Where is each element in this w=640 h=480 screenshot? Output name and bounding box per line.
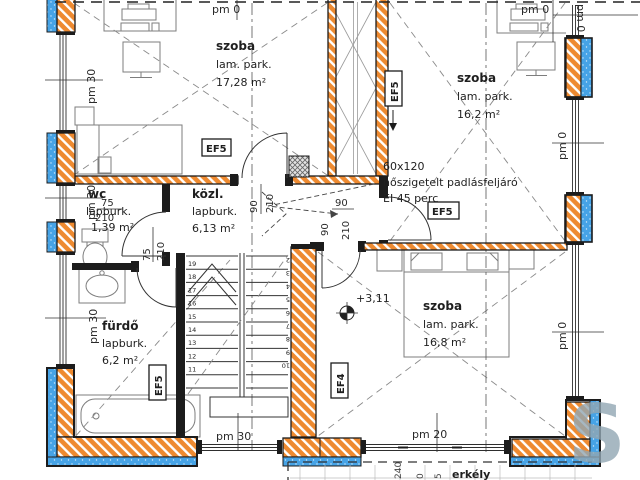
partition-wall: [364, 243, 567, 250]
room-name: szoba: [423, 299, 462, 313]
insulation-strip: [47, 222, 57, 252]
masonry-pier: [57, 368, 74, 437]
balcony-dim: 0: [416, 473, 426, 479]
masonry-pier: [57, 222, 75, 252]
pillow: [411, 253, 442, 270]
stair-step-number: 9: [286, 348, 290, 356]
door-width: 90: [320, 223, 331, 236]
nightstand: [377, 250, 402, 271]
monitor: [517, 42, 555, 70]
partition-wall: [72, 176, 238, 184]
stair-step-number: 6: [286, 309, 290, 317]
ef5-tag: EF5: [154, 375, 165, 396]
room-floor: lam. park.: [423, 318, 479, 331]
watermark: S: [568, 388, 626, 480]
ef4-tag: EF4: [336, 373, 347, 394]
room-floor: lapburk.: [102, 337, 147, 350]
shaft-wall-left: [328, 0, 336, 176]
attic-fire-rating: EI 45 perc: [383, 192, 438, 205]
floor-plan-drawing: 19 18 17 16 15 14 13 12 11 2 3 4 5 6 7 8…: [0, 0, 640, 480]
window-cap: [361, 440, 366, 454]
insulation-strip: [581, 38, 592, 97]
door-width: 75: [101, 198, 114, 209]
masonry-pier: [283, 438, 361, 457]
stair-step-number: 11: [188, 366, 196, 374]
room-floor: lam. park.: [457, 90, 513, 103]
ef5-tag: EF5: [390, 81, 401, 102]
room-area: 6,2 m²: [102, 354, 138, 367]
room-name: szoba: [457, 71, 496, 85]
door-jamb: [131, 261, 139, 272]
insulation-strip: [47, 457, 197, 466]
keyboard: [121, 23, 149, 31]
window-cap: [504, 440, 509, 454]
room-name: szoba: [216, 39, 255, 53]
balcony-dim: 5: [434, 473, 444, 479]
room-area: 16,8 m²: [423, 336, 466, 349]
ef5-tag: EF5: [432, 207, 453, 218]
printer: [122, 9, 156, 20]
chimney: [289, 156, 309, 177]
masonry-pier: [57, 0, 75, 32]
door-width: 90: [249, 200, 260, 213]
dimension-label: pm 30: [85, 69, 98, 104]
room-area: 16,2 m²: [457, 108, 500, 121]
door-height: 210: [156, 242, 167, 261]
insulation-strip: [47, 368, 57, 457]
door-width: 90: [335, 198, 348, 209]
door-height: 210: [341, 221, 352, 240]
room-floor: lapburk.: [192, 205, 237, 218]
dimension-label: pm 0: [556, 322, 569, 350]
stair-step-number: 3: [286, 269, 290, 277]
balcony-name: erkély: [452, 468, 490, 480]
stair-step-number: 4: [286, 282, 290, 290]
stair-step-number: 18: [188, 273, 196, 281]
dimension-label: pm 20: [412, 428, 447, 441]
masonry-pier: [566, 38, 581, 97]
attic-note: hőszigetelt padlásfeljáró: [383, 176, 518, 189]
balcony-dim: 240: [394, 462, 404, 479]
dimension-label: pm 30: [87, 309, 100, 344]
stair-step-number: 16: [188, 300, 196, 308]
stair-step-number: 17: [188, 286, 196, 294]
attic-size: 60x120: [383, 160, 425, 173]
ef5-tag: EF5: [206, 144, 227, 155]
window-cap: [197, 440, 202, 454]
wall-cap: [291, 244, 316, 249]
dimension-label: pm 0: [556, 132, 569, 160]
bed-single: [77, 125, 182, 174]
wc-bath-wall: [72, 263, 133, 270]
door-height: 210: [265, 194, 276, 213]
window-cap: [277, 440, 282, 454]
stair-step-number: 12: [188, 352, 196, 360]
nightstand: [509, 250, 534, 269]
stair-step-number: 8: [286, 335, 290, 343]
dimension-label: pm 0: [212, 3, 240, 16]
wc-wall: [162, 184, 170, 212]
stair-wall-right: [291, 247, 316, 437]
masonry-pier: [566, 195, 581, 242]
stair-step-number: 14: [188, 326, 196, 334]
stair-step-number: 5: [286, 296, 290, 304]
room-name: fürdő: [102, 319, 139, 333]
monitor: [123, 42, 160, 72]
masonry-band: [57, 437, 197, 457]
stair-step-number: 2: [286, 256, 290, 264]
dimension-label: pm 30: [216, 430, 251, 443]
stair-step-number: 7: [286, 322, 290, 330]
masonry-pier: [57, 133, 75, 183]
mouse: [152, 23, 159, 31]
room-area: 17,28 m²: [216, 76, 266, 89]
printer: [128, 4, 149, 9]
keyboard: [510, 23, 538, 31]
level-value: +3,11: [356, 292, 390, 305]
pillow: [75, 107, 94, 125]
insulation-strip: [581, 195, 592, 242]
floor-plan-page: 19 18 17 16 15 14 13 12 11 2 3 4 5 6 7 8…: [0, 0, 640, 480]
dimension-label: pm 0: [574, 4, 587, 32]
pillow: [467, 253, 498, 270]
stair-step-number: 10: [282, 362, 290, 370]
dimension-label: pm 0: [521, 3, 549, 16]
door-jamb: [230, 174, 238, 186]
room-area: 6,13 m²: [192, 222, 235, 235]
insulation-strip: [47, 133, 57, 183]
door-height: 210: [95, 213, 114, 224]
stair-step-number: 13: [188, 339, 196, 347]
stair-step-number: 15: [188, 313, 196, 321]
room-floor: lam. park.: [216, 58, 272, 71]
stair-wall-left: [176, 253, 185, 437]
insulation-strip: [47, 0, 57, 32]
stair-step-number: 19: [188, 260, 196, 268]
door-width: 75: [142, 248, 153, 261]
room-name: közl.: [192, 187, 224, 201]
